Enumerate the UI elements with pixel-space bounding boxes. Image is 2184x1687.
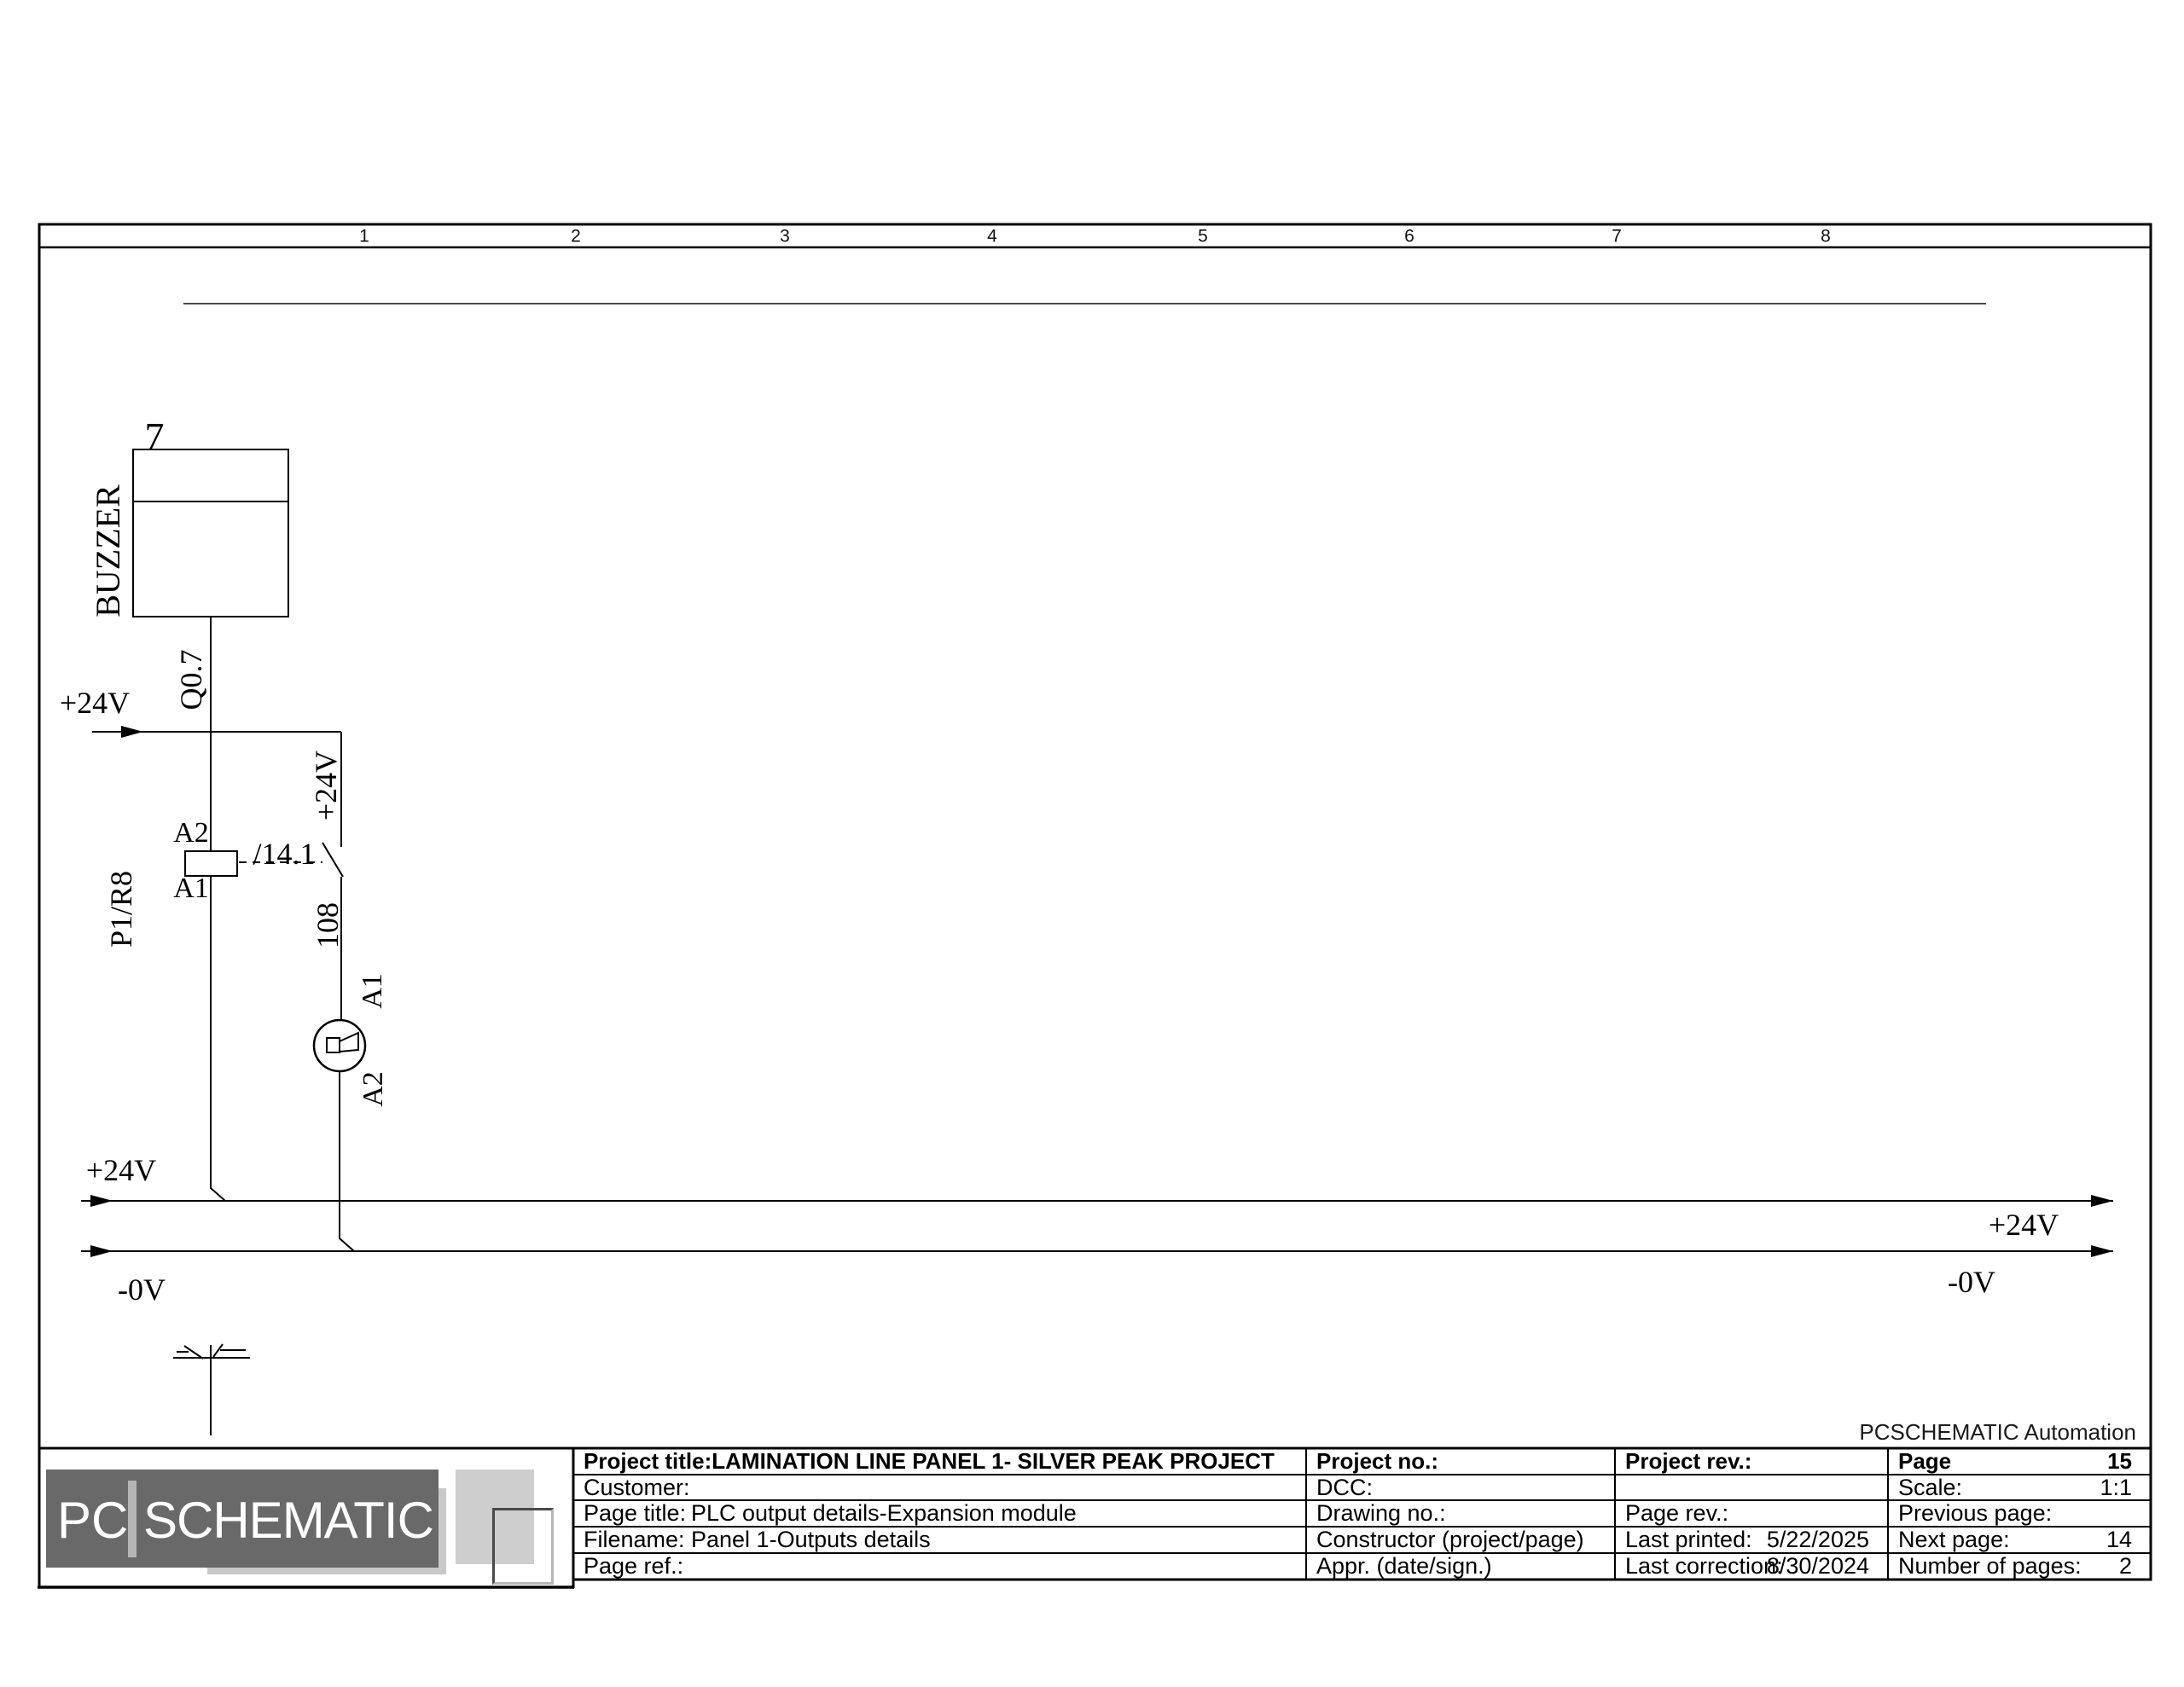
logo-square-outline — [492, 1508, 554, 1585]
horn-pin-a2-label: A2 — [359, 1071, 388, 1107]
filename-label: Filename: — [584, 1527, 685, 1552]
ruler-number-8: 8 — [1821, 228, 1831, 246]
scale-label: Scale: — [1898, 1475, 1962, 1500]
previous-page-label: Previous page: — [1898, 1500, 2052, 1526]
title-block-next-page-row: Next page: 14 — [1898, 1527, 2142, 1553]
buzzer-plc-output-box — [133, 449, 288, 617]
title-block-last-correction-row: Last correction: 8/30/2024 — [1625, 1553, 1879, 1580]
appr-label: Appr. (date/sign.) — [1316, 1553, 1606, 1580]
title-block-previous-page-row: Previous page: — [1898, 1500, 2142, 1527]
horn-pin-a1-label: A1 — [358, 973, 387, 1009]
zero-volt-rail-left-arrow-icon — [90, 1245, 113, 1257]
project-title-label: Project title: — [584, 1448, 712, 1474]
logo-text-pc: PC — [57, 1470, 128, 1568]
next-page-label: Next page: — [1898, 1527, 2010, 1552]
page-number-value: 15 — [2107, 1448, 2132, 1475]
pcschematic-logo: PC SCHEMATIC — [46, 1470, 439, 1568]
supply-24v-top-label: +24V — [60, 687, 130, 718]
num-pages-label: Number of pages: — [1898, 1553, 2082, 1579]
pcschematic-automation-text: PCSCHEMATIC Automation — [1706, 1418, 2136, 1446]
constructor-label: Constructor (project/page) — [1316, 1527, 1606, 1553]
rail-0v-right-label: -0V — [1948, 1267, 1995, 1297]
relay-name-label: P1/R8 — [106, 871, 136, 948]
ruler-number-1: 1 — [359, 228, 369, 246]
customer-label: Customer: — [584, 1475, 1300, 1500]
logo-divider-bar — [128, 1481, 136, 1557]
last-correction-label: Last correction: — [1625, 1553, 1783, 1579]
buzzer-pin-number: 7 — [145, 417, 165, 456]
last-printed-label: Last printed: — [1625, 1527, 1752, 1552]
page-title-label: Page title: — [584, 1500, 686, 1526]
drawing-frame — [39, 224, 2151, 1448]
page-label: Page — [1898, 1448, 1951, 1474]
shield-symbol — [173, 1344, 250, 1435]
project-no-label: Project no.: — [1316, 1448, 1606, 1475]
project-title-value: LAMINATION LINE PANEL 1- SILVER PEAK PRO… — [712, 1448, 1275, 1474]
arrow-24v-feed-icon — [121, 726, 143, 738]
project-rev-label: Project rev.: — [1625, 1448, 1879, 1475]
rail-plus24v-right-label: +24V — [1989, 1209, 2059, 1240]
schematic-sheet: 1 2 3 4 5 6 7 8 7 BUZZER Q0.7 +24V A2 A1… — [0, 0, 2184, 1687]
coil-pin-a2-label: A2 — [173, 819, 209, 848]
title-block-last-printed-row: Last printed: 5/22/2025 — [1625, 1527, 1879, 1553]
page-ref-label: Page ref.: — [584, 1553, 1300, 1580]
drawing-no-label: Drawing no.: — [1316, 1500, 1606, 1527]
zero-volt-rail-right-arrow-icon — [2091, 1245, 2113, 1257]
rail-plus24v-left-label: +24V — [86, 1155, 156, 1186]
page-rev-label: Page rev.: — [1625, 1500, 1879, 1527]
title-block-page-row: Page 15 — [1898, 1448, 2142, 1475]
num-pages-value: 2 — [2119, 1553, 2132, 1580]
title-block-num-pages-row: Number of pages: 2 — [1898, 1553, 2142, 1580]
ruler-number-4: 4 — [987, 228, 997, 246]
wire-number-label: 108 — [312, 902, 343, 948]
buzzer-name-label: BUZZER — [91, 484, 125, 617]
last-printed-value: 5/22/2025 — [1767, 1527, 1869, 1553]
ruler-number-5: 5 — [1198, 228, 1208, 246]
plus24v-rail-right-arrow-icon — [2091, 1195, 2113, 1207]
title-block-project-title-row: Project title:LAMINATION LINE PANEL 1- S… — [584, 1448, 1300, 1475]
ruler-number-7: 7 — [1612, 228, 1622, 246]
plus24v-rail-left-arrow-icon — [90, 1195, 113, 1207]
horn-icon — [327, 1038, 340, 1052]
coil-pin-a1-label: A1 — [173, 874, 209, 903]
contact-blade — [322, 843, 343, 877]
plc-signal-label: Q0.7 — [176, 650, 206, 710]
branch-24v-label: +24V — [311, 751, 341, 820]
scale-value: 1:1 — [2100, 1475, 2132, 1500]
page-title-value: PLC output details-Expansion module — [691, 1500, 1077, 1527]
last-correction-value: 8/30/2024 — [1767, 1553, 1869, 1580]
wire-coil-to-plus-rail — [211, 876, 225, 1201]
next-page-value: 14 — [2106, 1527, 2132, 1553]
dcc-label: DCC: — [1316, 1475, 1606, 1500]
wire-horn-to-zero-rail — [340, 1071, 354, 1251]
filename-value: Panel 1-Outputs details — [691, 1527, 931, 1553]
title-block-page-title-row: Page title: PLC output details-Expansion… — [584, 1500, 1300, 1527]
rail-0v-left-label: -0V — [118, 1274, 166, 1305]
logo-text-schematic: SCHEMATIC — [143, 1470, 433, 1568]
ruler-number-2: 2 — [571, 228, 581, 246]
title-block-filename-row: Filename: Panel 1-Outputs details — [584, 1527, 1300, 1553]
title-block-scale-row: Scale: 1:1 — [1898, 1475, 2142, 1500]
contact-crossref-label: /14.1 — [253, 838, 315, 869]
ruler-number-3: 3 — [780, 228, 790, 246]
ruler-number-6: 6 — [1404, 228, 1414, 246]
